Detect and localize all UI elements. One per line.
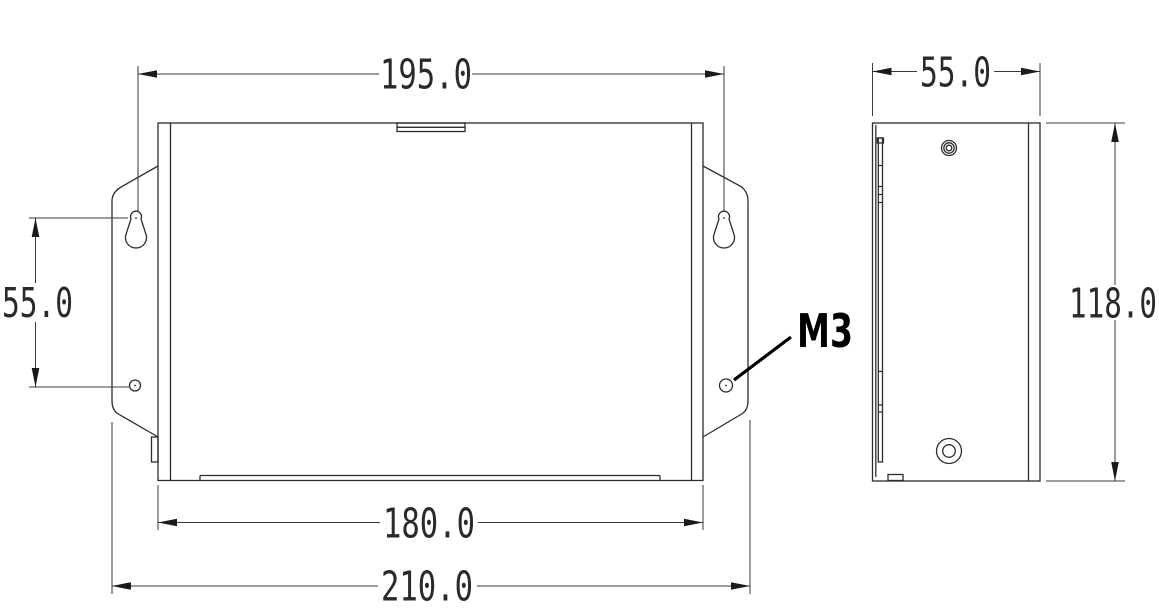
dimension-55-front: 55.0 xyxy=(2,218,129,387)
mounting-ear-right xyxy=(703,166,748,437)
side-view xyxy=(873,123,1041,481)
side-body xyxy=(873,123,1041,481)
m3-label: M3 xyxy=(797,304,853,358)
dim-label-55-side: 55.0 xyxy=(920,49,991,97)
dimension-55-side: 55.0 xyxy=(873,49,1041,117)
mounting-ear-left xyxy=(112,166,158,437)
dim-label-210: 210.0 xyxy=(381,563,473,609)
front-view xyxy=(112,123,748,481)
m3-leader-line xyxy=(734,337,791,380)
keyhole-slot-right xyxy=(714,211,735,248)
mounting-hole-left xyxy=(130,380,141,391)
m3-callout: M3 xyxy=(734,304,853,380)
keyhole-slot-left xyxy=(126,211,147,248)
din-tab-front xyxy=(152,437,159,462)
drawing-canvas: 195.0 55.0 180.0 210.0 M3 xyxy=(0,0,1159,609)
dim-label-118: 118.0 xyxy=(1069,280,1157,328)
dim-label-195: 195.0 xyxy=(380,51,472,99)
m3-hole xyxy=(720,379,733,392)
dim-label-55-front: 55.0 xyxy=(2,279,73,327)
dim-label-180: 180.0 xyxy=(383,500,475,548)
enclosure-body xyxy=(158,123,703,481)
technical-drawing: 195.0 55.0 180.0 210.0 M3 xyxy=(0,0,1159,609)
dimension-180: 180.0 xyxy=(158,485,703,548)
dimension-118: 118.0 xyxy=(1046,123,1157,481)
